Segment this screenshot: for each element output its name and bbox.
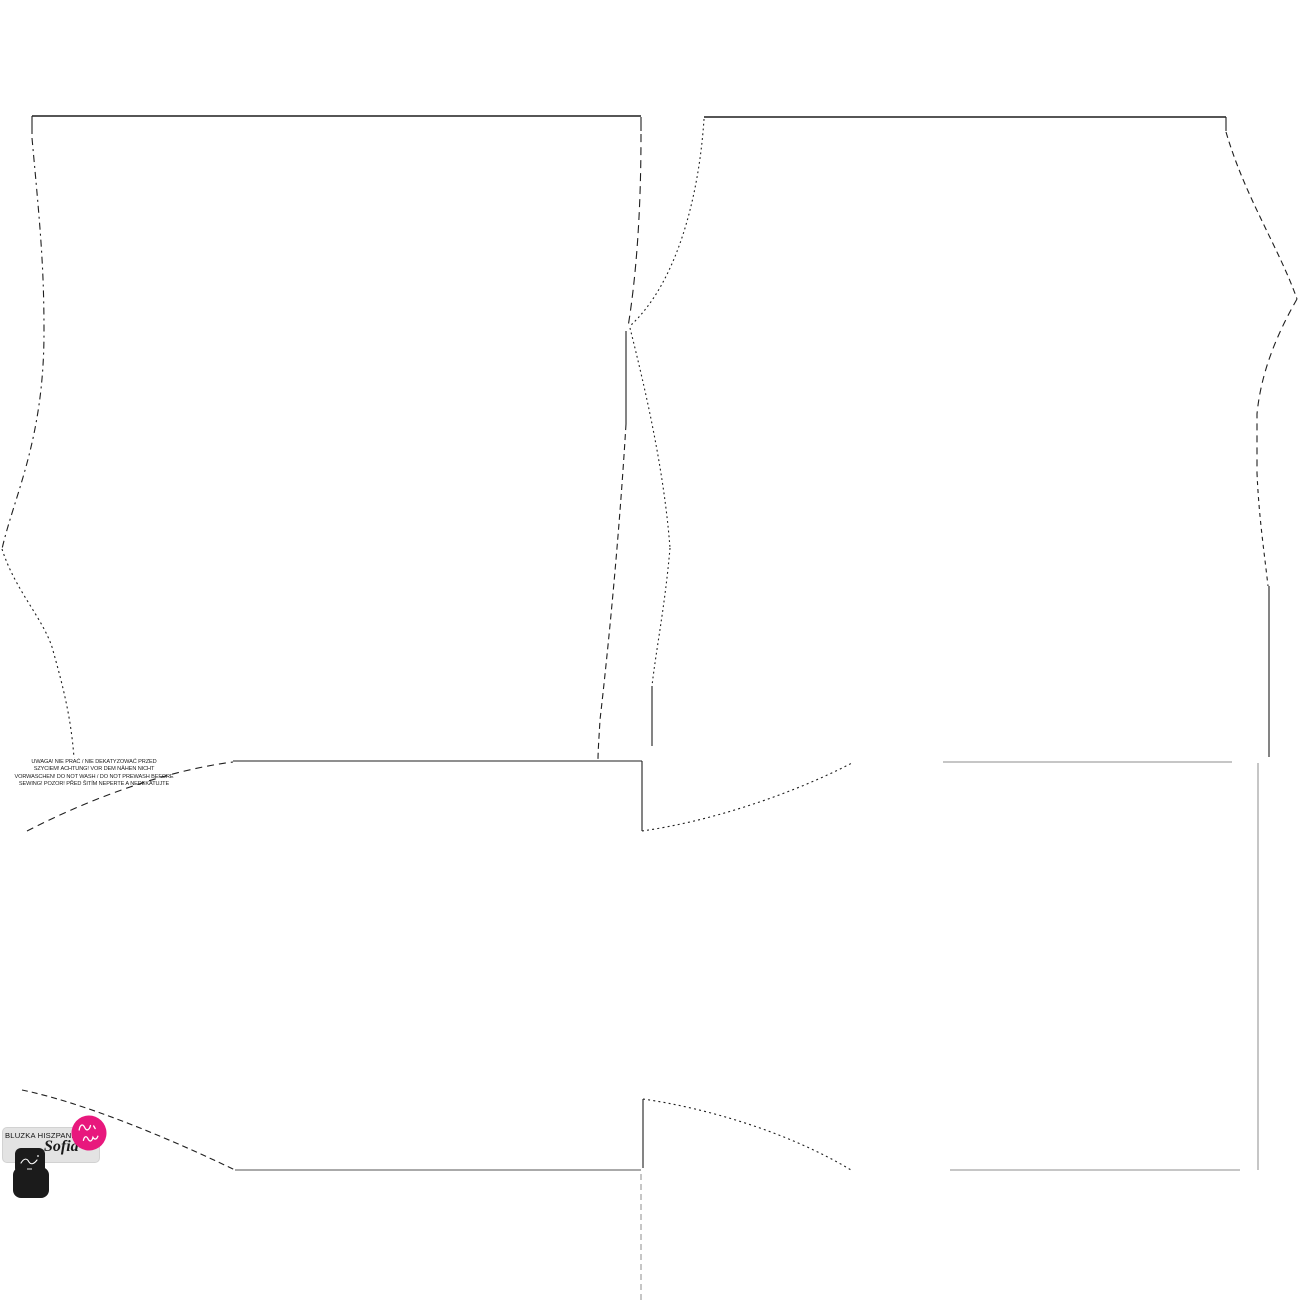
back-right-edge-hip <box>1257 473 1268 586</box>
pattern-label-name: Sofia <box>44 1138 79 1156</box>
right-band-piece-outline <box>943 762 1258 1170</box>
back-side-seam-lower <box>652 548 670 686</box>
front-right-edge-lower <box>598 424 626 761</box>
front-piece-outline <box>2 116 641 761</box>
left-band-hem-curve-right <box>642 763 852 831</box>
front-left-edge-lower <box>2 549 74 758</box>
left-band-piece-outline <box>22 761 852 1300</box>
warning-line: VORWASCHEN! DO NOT WASH / DO NOT PREWASH… <box>12 774 176 781</box>
sewing-pattern-sheet: UWAGA! NIE PRAĆ / NIE DEKATYZOWAĆ PRZED … <box>0 0 1300 1300</box>
front-right-edge-upper <box>628 134 641 327</box>
back-right-edge-waist <box>1257 299 1297 473</box>
back-right-edge-upper <box>1226 132 1297 299</box>
warning-line: SZYCIEM! ACHTUNG! VOR DEM NÄHEN NICHT <box>12 766 176 773</box>
back-side-seam-upper <box>630 328 670 548</box>
warning-line: SEWING! POZOR! PŘED ŠITÍM NEPERTE A NEDE… <box>12 781 176 788</box>
warning-text-block: UWAGA! NIE PRAĆ / NIE DEKATYZOWAĆ PRZED … <box>12 759 176 788</box>
left-band-lower-curve-right <box>643 1099 851 1170</box>
pattern-linework-svg <box>0 0 1300 1300</box>
back-piece-outline <box>630 117 1297 757</box>
front-left-edge-upper <box>2 138 44 549</box>
